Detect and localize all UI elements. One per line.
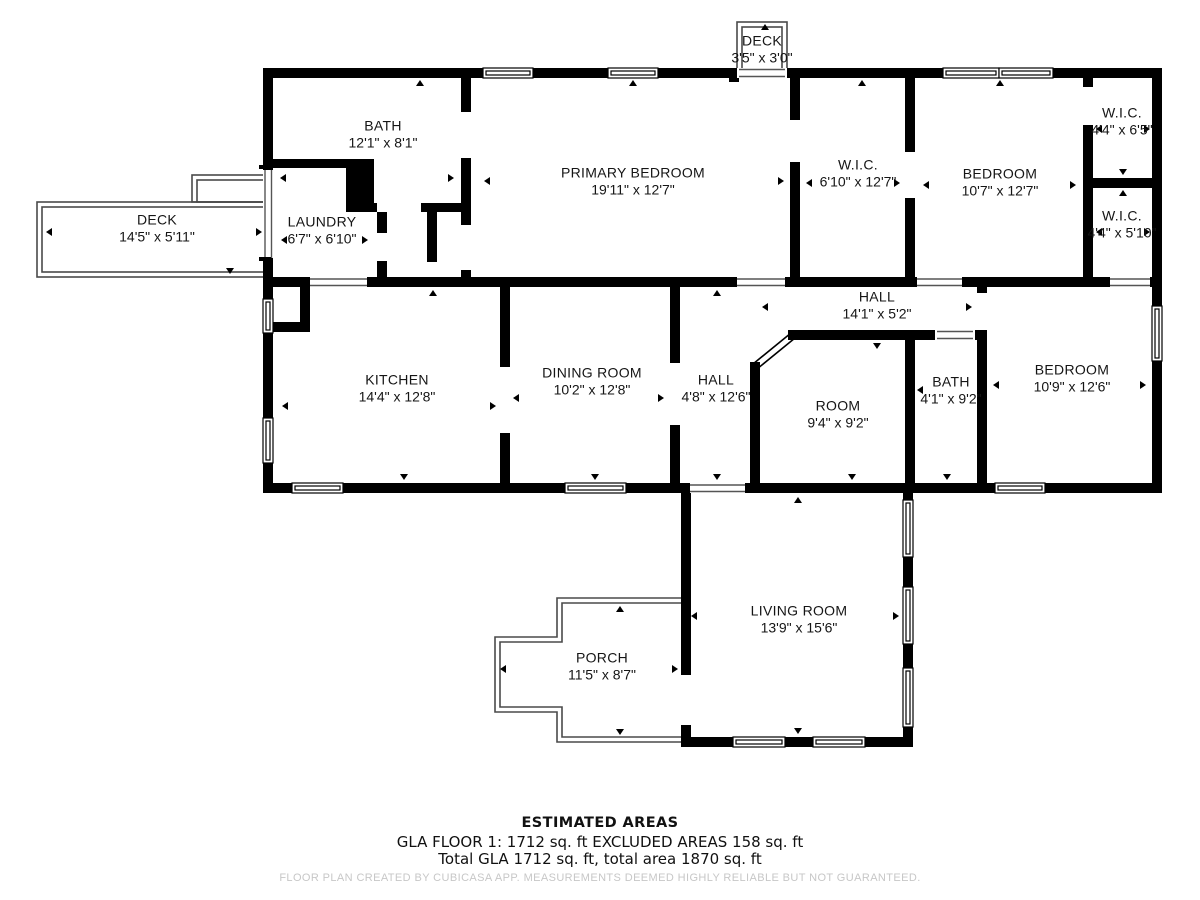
room-label-porch: PORCH 11'5" x 8'7" [568, 650, 636, 683]
room-label-wic-lower-right: W.I.C. 4'4" x 5'10" [1088, 208, 1157, 241]
floorplan-page: DECK 3'5" x 3'0" BATH 12'1" x 8'1" PRIMA… [0, 0, 1200, 900]
room-label-wic-center: W.I.C. 6'10" x 12'7" [820, 157, 897, 190]
room-label-laundry: LAUNDRY 6'7" x 6'10" [288, 214, 357, 247]
room-label-primary-bedroom: PRIMARY BEDROOM 19'11" x 12'7" [561, 165, 705, 198]
summary-total-line: Total GLA 1712 sq. ft, total area 1870 s… [0, 850, 1200, 868]
summary-gla-line: GLA FLOOR 1: 1712 sq. ft EXCLUDED AREAS … [0, 833, 1200, 851]
room-label-deck-left: DECK 14'5" x 5'11" [119, 212, 195, 245]
room-label-hall-horizontal: HALL 14'1" x 5'2" [843, 289, 912, 322]
room-label-bedroom-right: BEDROOM 10'9" x 12'6" [1034, 362, 1111, 395]
room-label-living-room: LIVING ROOM 13'9" x 15'6" [751, 603, 848, 636]
room-label-hall-vertical: HALL 4'8" x 12'6" [682, 372, 751, 405]
room-label-bath-small: BATH 4'1" x 9'2" [920, 374, 981, 407]
disclaimer-text: FLOOR PLAN CREATED BY CUBICASA APP. MEAS… [0, 872, 1200, 884]
floorplan-canvas [0, 0, 1200, 900]
room-label-wic-upper-right: W.I.C. 4'4" x 6'5" [1091, 105, 1152, 138]
room-label-room: ROOM 9'4" x 9'2" [807, 398, 868, 431]
room-label-dining-room: DINING ROOM 10'2" x 12'8" [542, 365, 642, 398]
summary-heading: ESTIMATED AREAS [0, 815, 1200, 831]
room-label-kitchen: KITCHEN 14'4" x 12'8" [359, 372, 436, 405]
room-label-bath-main: BATH 12'1" x 8'1" [349, 118, 418, 151]
room-label-deck-top: DECK 3'5" x 3'0" [731, 33, 792, 66]
room-label-bedroom-top: BEDROOM 10'7" x 12'7" [962, 166, 1039, 199]
